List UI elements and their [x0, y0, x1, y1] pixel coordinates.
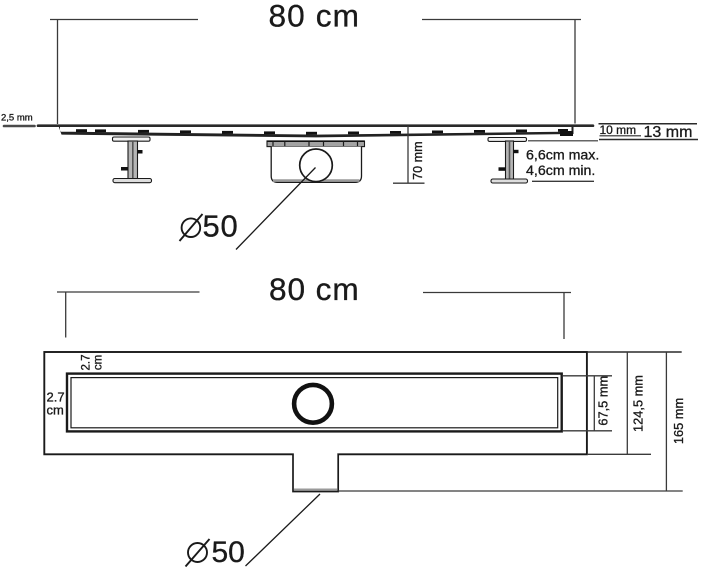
- svg-text:2,5 mm: 2,5 mm: [1, 113, 33, 124]
- svg-text:165 mm: 165 mm: [671, 398, 686, 444]
- svg-text:2.7: 2.7: [81, 355, 93, 371]
- svg-text:67,5 mm: 67,5 mm: [596, 376, 611, 426]
- svg-text:70 mm: 70 mm: [411, 141, 425, 180]
- svg-text:124,5 mm: 124,5 mm: [631, 375, 646, 432]
- svg-text:4,6cm min.: 4,6cm min.: [526, 163, 595, 179]
- svg-text:50: 50: [203, 208, 239, 243]
- svg-text:13 mm: 13 mm: [644, 124, 693, 141]
- svg-text:80 cm: 80 cm: [269, 0, 361, 34]
- svg-text:10 mm: 10 mm: [600, 123, 637, 137]
- svg-text:50: 50: [212, 536, 245, 569]
- svg-text:80 cm: 80 cm: [269, 271, 360, 307]
- svg-text:6,6cm max.: 6,6cm max.: [526, 148, 599, 164]
- svg-text:cm: cm: [93, 355, 105, 370]
- svg-text:cm: cm: [47, 403, 64, 418]
